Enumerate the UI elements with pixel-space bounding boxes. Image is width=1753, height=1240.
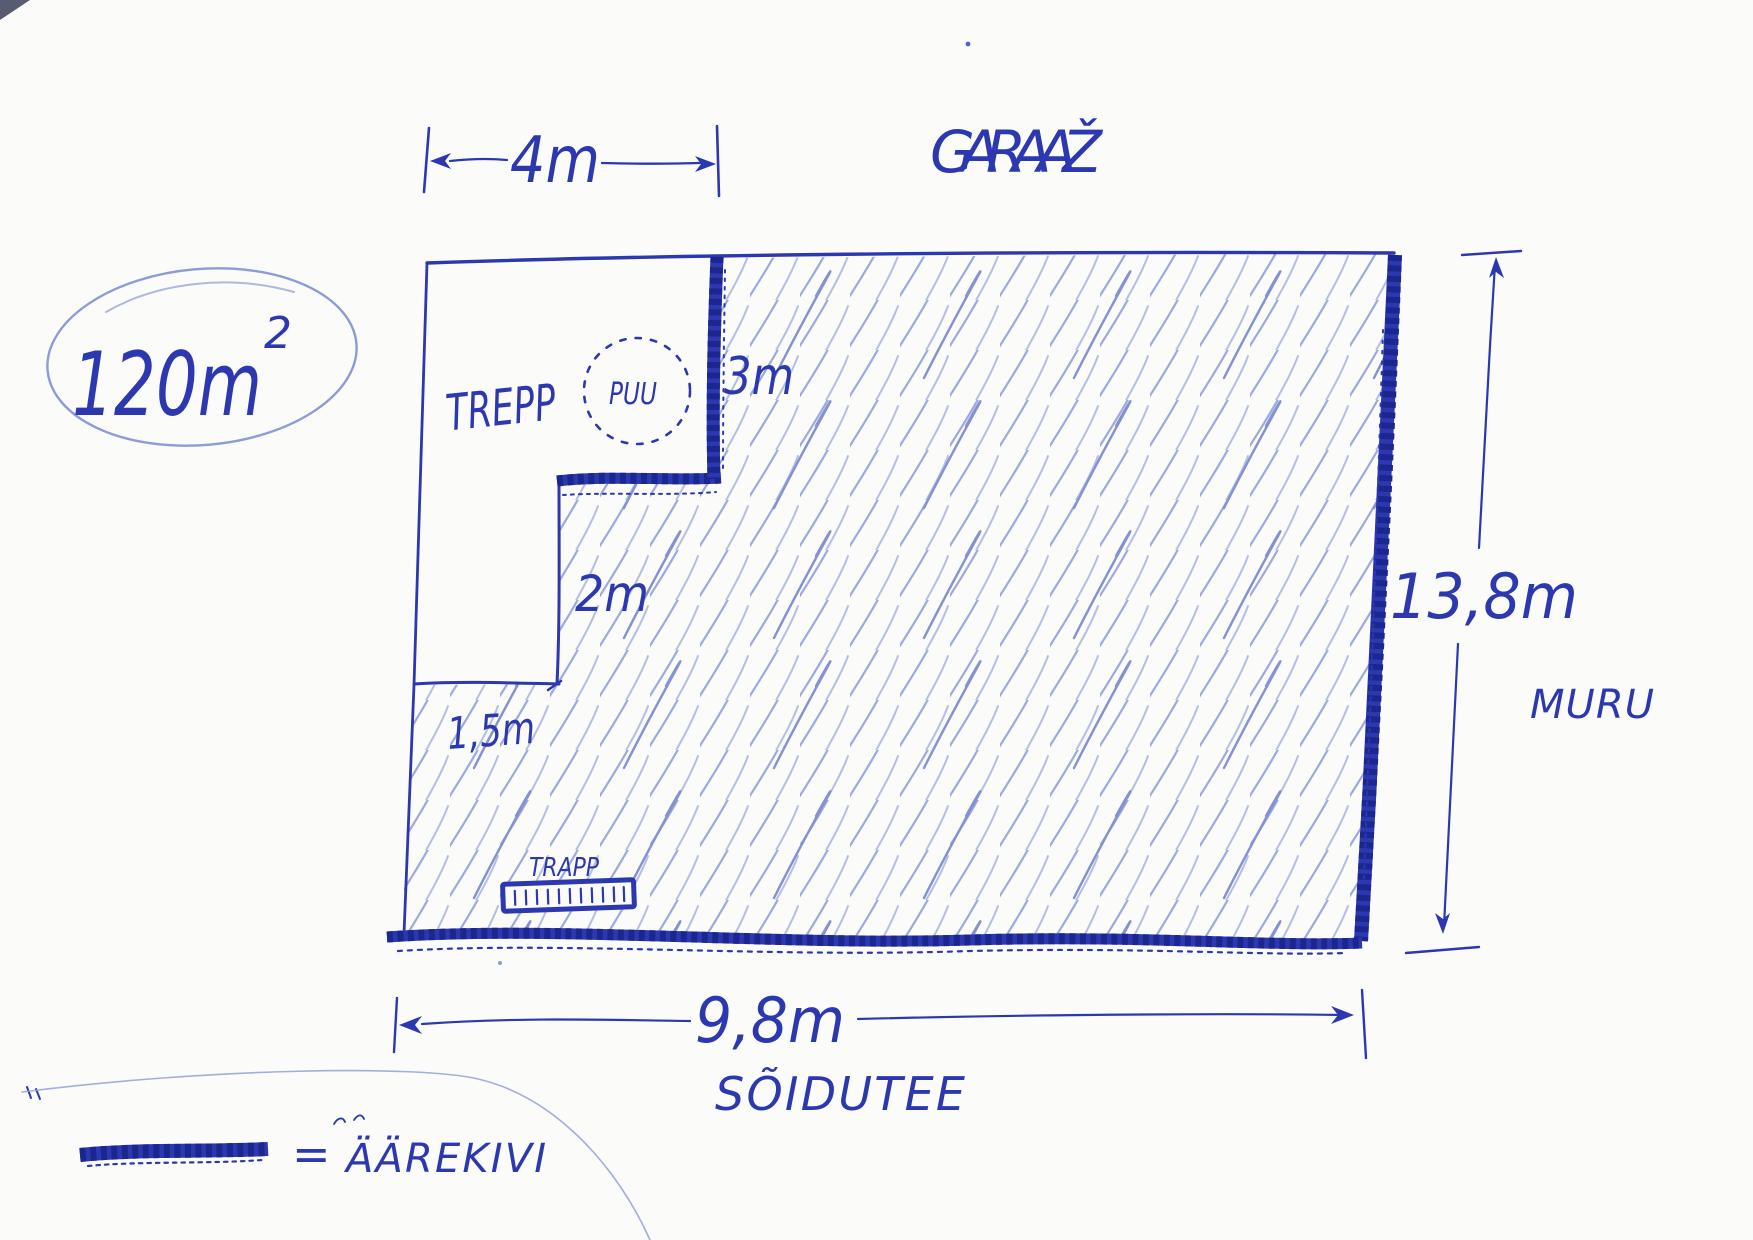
ink-speck xyxy=(498,961,502,965)
dimension-step-side-value: 2m xyxy=(575,565,649,623)
drain-grate xyxy=(503,880,635,912)
dimension-plot-width-value: 9,8m xyxy=(695,984,845,1057)
legend-equals: = xyxy=(292,1127,331,1181)
garage-label: GARAAŽ xyxy=(930,117,1103,186)
site-plan-sketch: PUU TREPP TRAPP 4m GARAAŽ 120m 2 3m 2m 1… xyxy=(0,0,1753,1240)
dimension-curb-side-value: 3m xyxy=(724,347,794,407)
lawn-label: MURU xyxy=(1530,682,1654,728)
dimension-plot-height-value: 13,8m xyxy=(1390,560,1578,633)
stair-step-bottom-edge xyxy=(414,682,559,684)
dimension-step-bottom-value: 1,5m xyxy=(445,703,536,760)
area-value: 120m xyxy=(72,333,262,436)
area-exponent: 2 xyxy=(264,308,292,359)
stairs-label: TREPP xyxy=(443,373,559,442)
dimension-stairs-width-value: 4m xyxy=(510,124,600,198)
ink-speck xyxy=(966,42,971,47)
drain-label: TRAPP xyxy=(529,853,599,883)
tree-label: PUU xyxy=(609,377,657,412)
driveway-label: SÕIDUTEE xyxy=(715,1067,965,1121)
scanned-sketch-page: PUU TREPP TRAPP 4m GARAAŽ 120m 2 3m 2m 1… xyxy=(0,0,1753,1240)
